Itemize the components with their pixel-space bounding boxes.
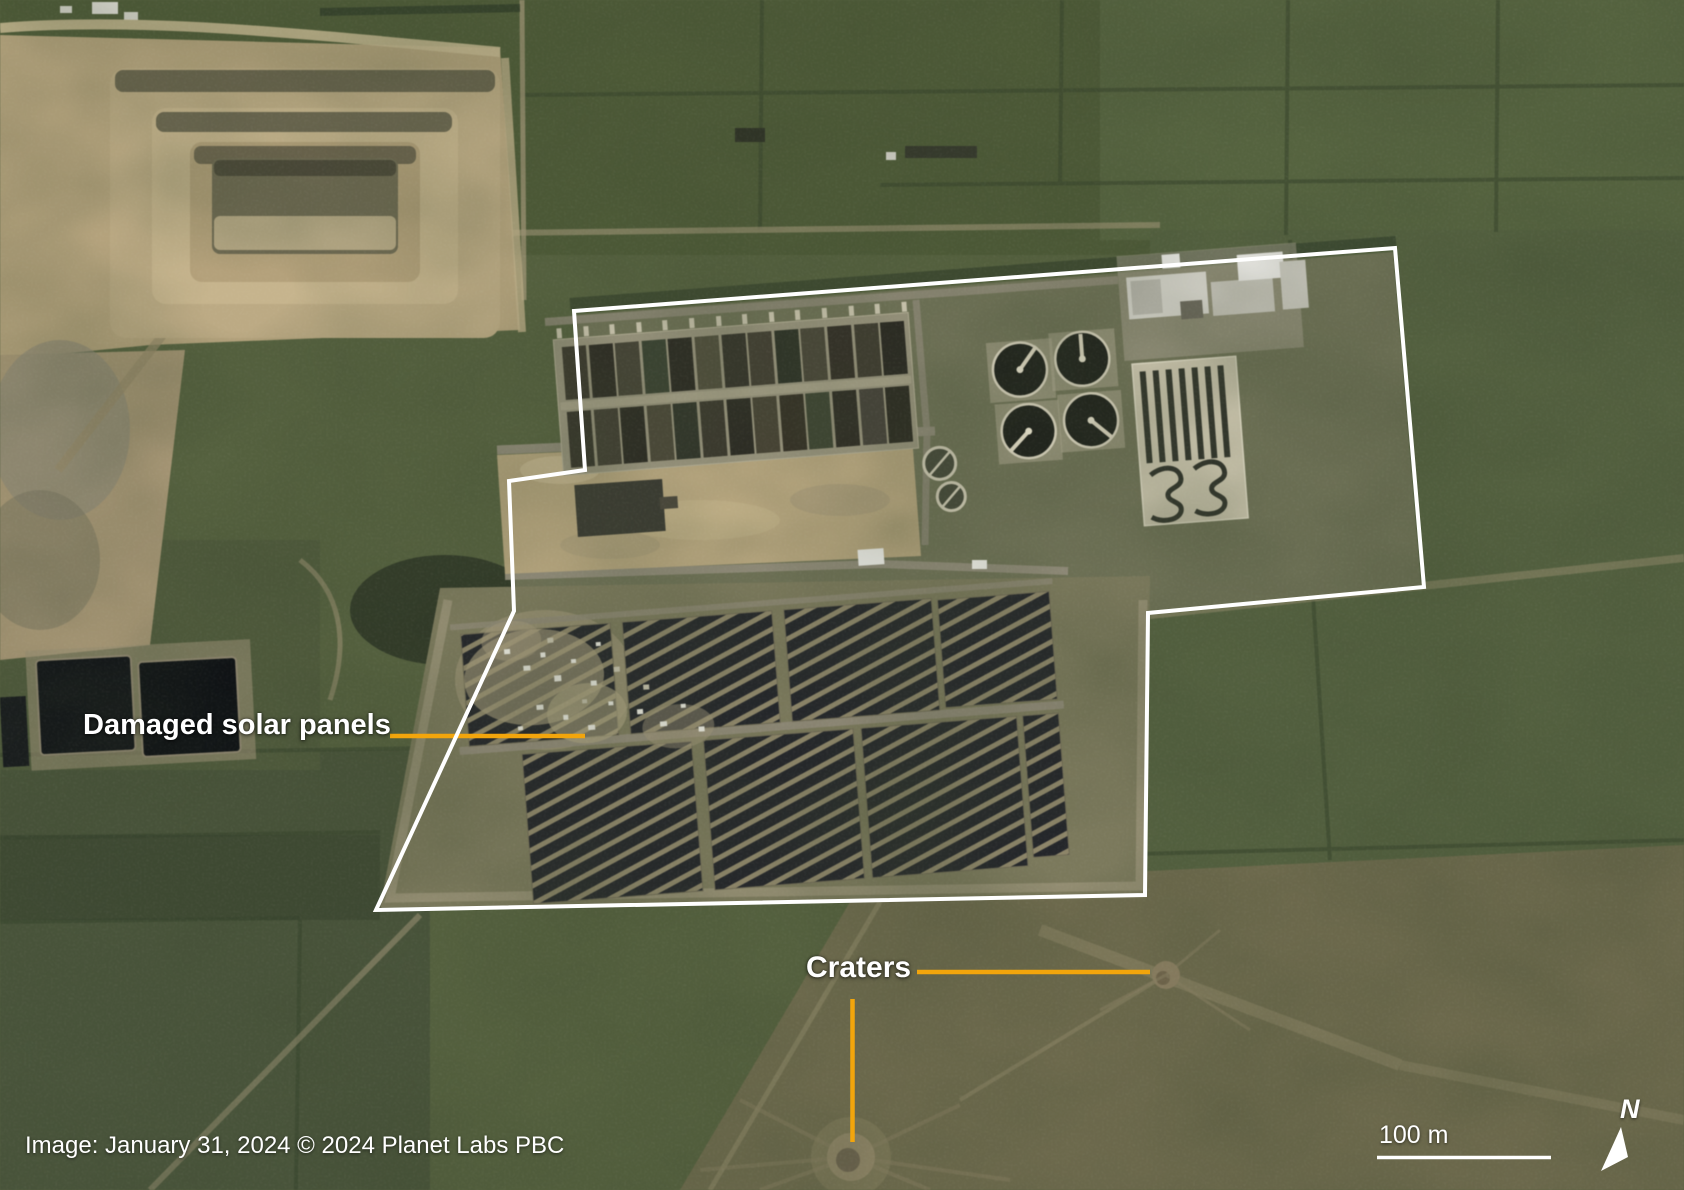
north-arrow-icon xyxy=(1601,1127,1628,1171)
damaged-solar-panels-label: Damaged solar panels xyxy=(83,710,391,742)
annotation-overlay xyxy=(0,0,1684,1190)
north-label: N xyxy=(1620,1094,1640,1125)
craters-label: Craters xyxy=(806,951,911,984)
satellite-map-figure: Damaged solar panels Craters Image: Janu… xyxy=(0,0,1684,1190)
scale-bar-label: 100 m xyxy=(1379,1121,1448,1150)
facility-outline xyxy=(376,248,1424,910)
image-attribution: Image: January 31, 2024 © 2024 Planet La… xyxy=(25,1132,564,1160)
